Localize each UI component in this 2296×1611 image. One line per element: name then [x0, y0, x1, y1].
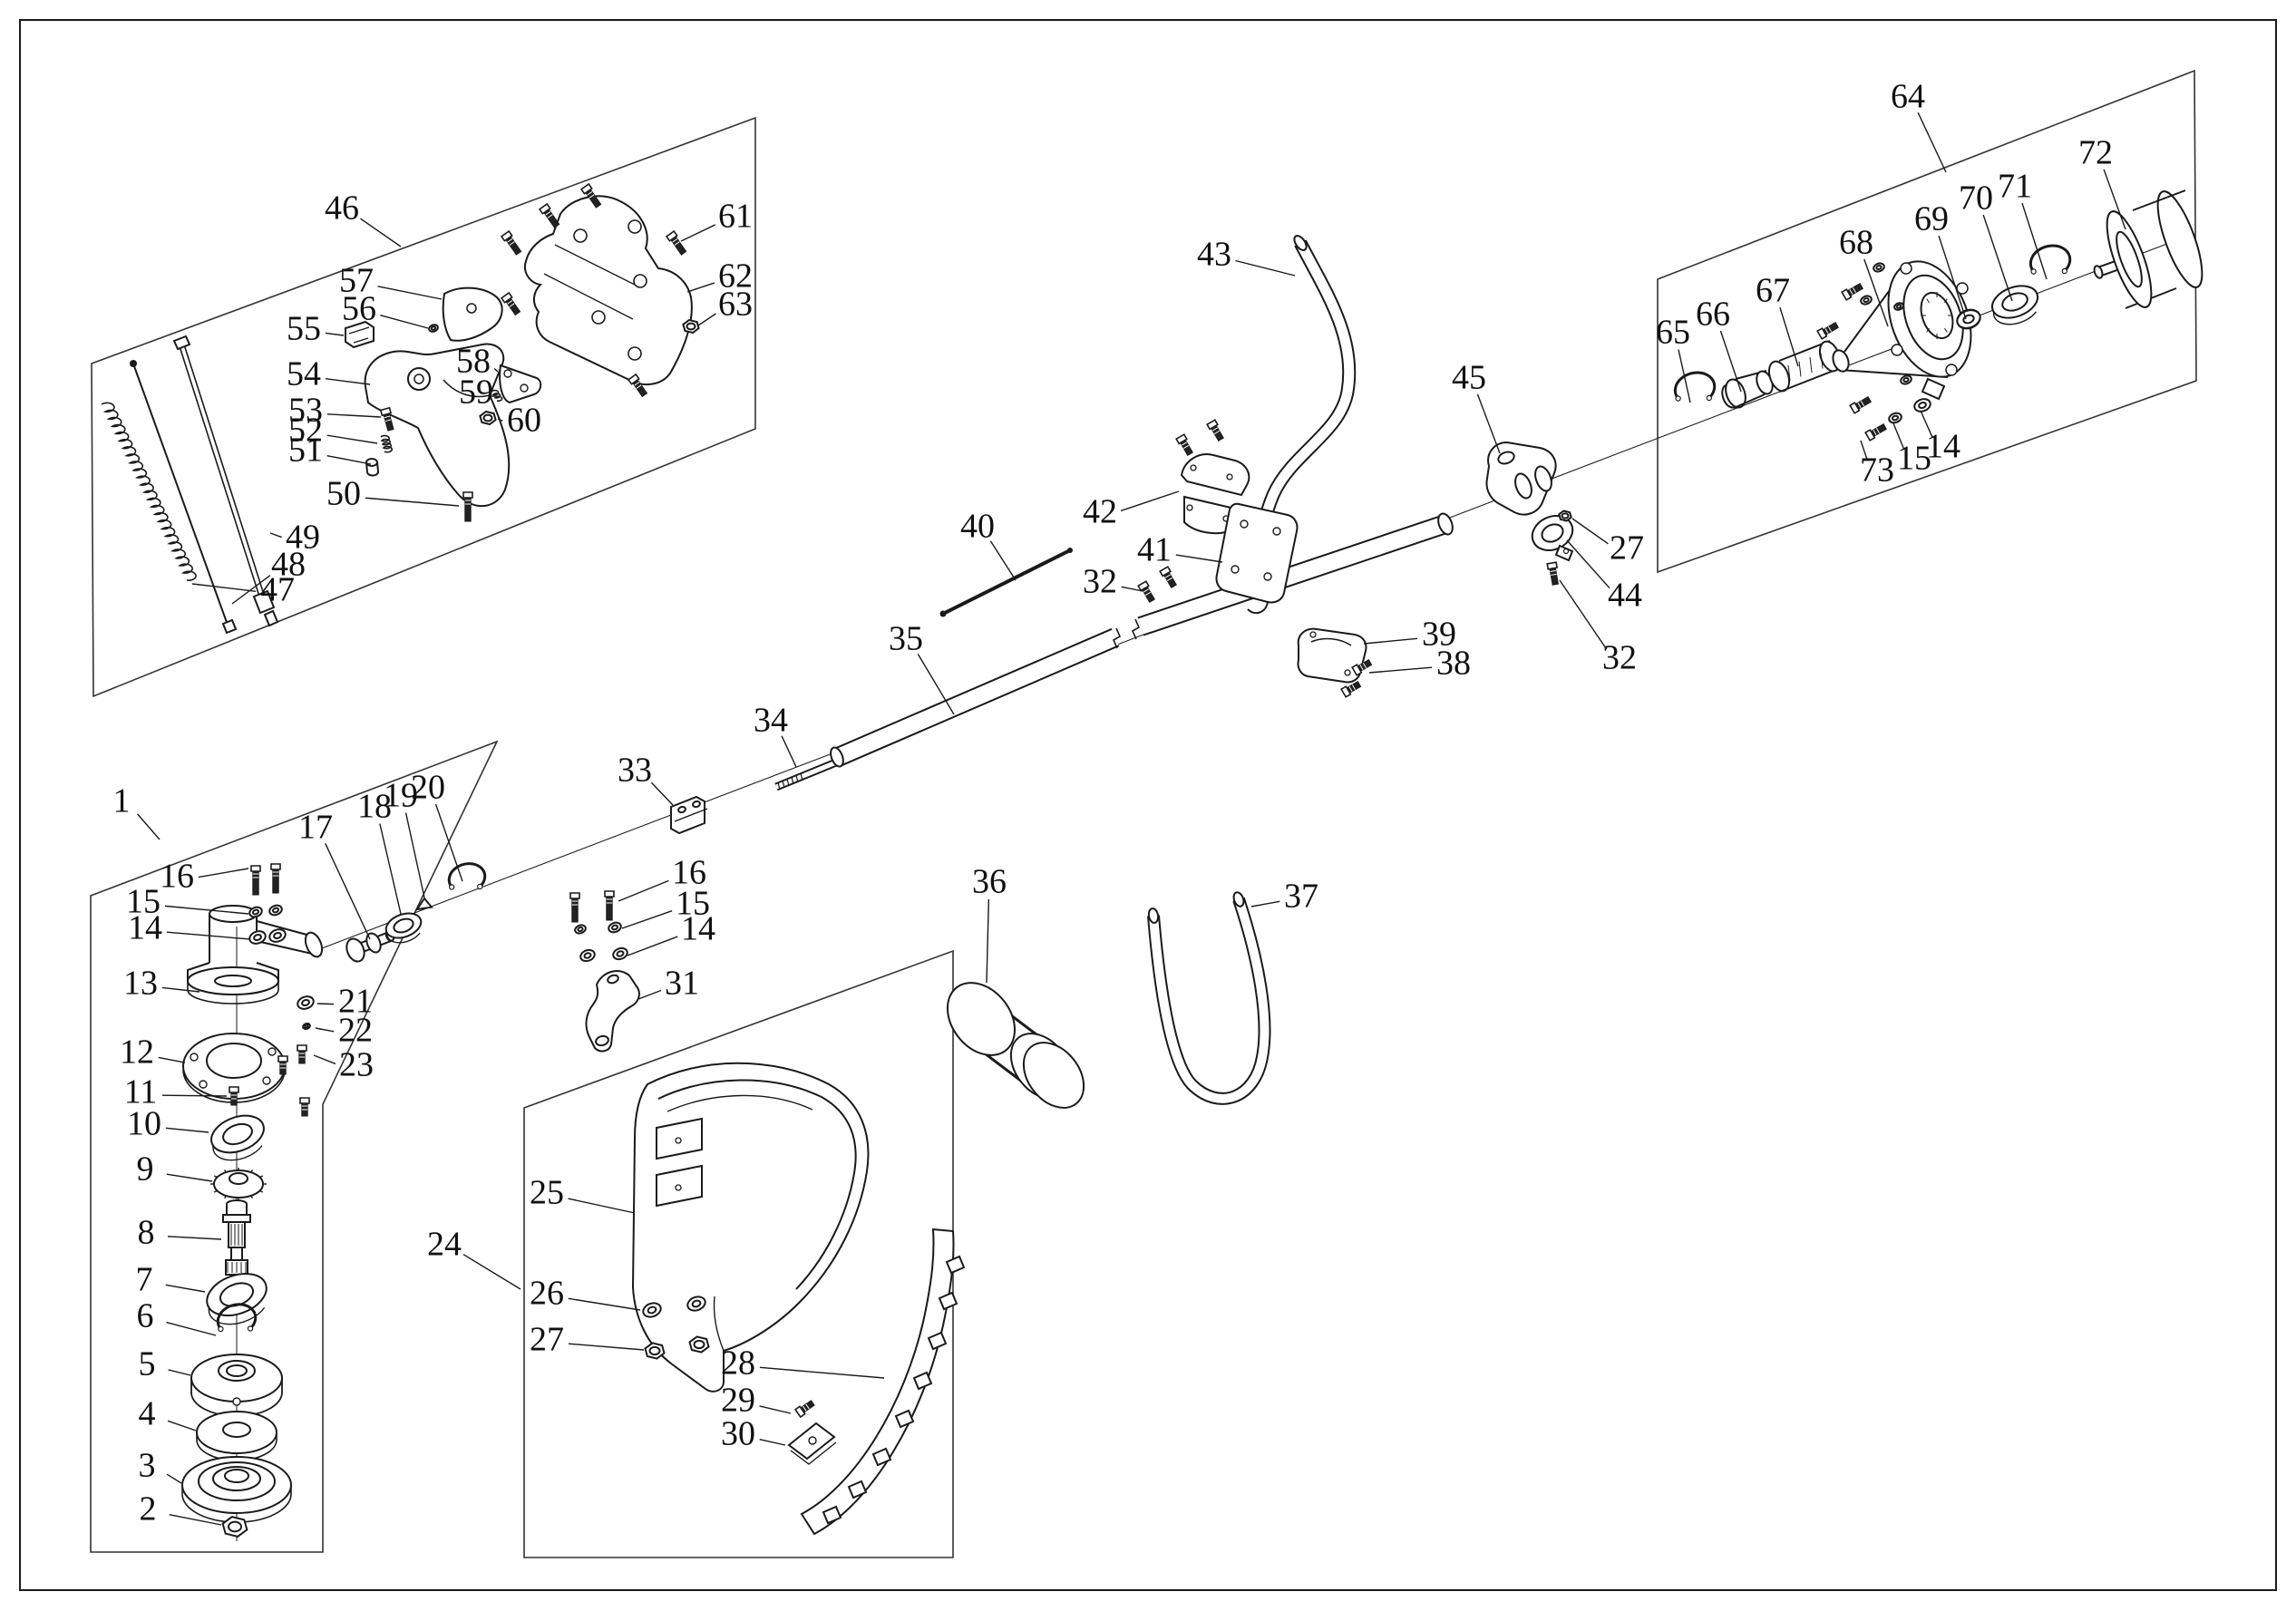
screw: [501, 231, 522, 256]
hex-nut: [1559, 511, 1571, 521]
leader-line-9: [167, 1174, 212, 1181]
circlip-eye: [2031, 269, 2036, 274]
part-label-66: 66: [1696, 296, 1730, 334]
part-label-56: 56: [342, 290, 376, 328]
throttle-handle-parts: [102, 196, 692, 633]
clip-hole: [1310, 632, 1316, 637]
part-label-61: 61: [718, 198, 753, 236]
drive-plate-hub: [219, 1361, 255, 1381]
part-label-65: 65: [1656, 314, 1690, 352]
gear-tooth: [214, 1191, 217, 1193]
washer: [302, 1023, 310, 1030]
bracket-hook: [1248, 602, 1268, 613]
part-label-71: 71: [1998, 168, 2032, 206]
leader-line-4: [168, 1421, 196, 1431]
hex-nut: [690, 1336, 709, 1352]
cable-end-ball: [130, 360, 137, 367]
leader-line-31: [638, 990, 661, 999]
break-mark: [1133, 619, 1139, 639]
leader-line-11: [162, 1095, 227, 1096]
leader-line-14: [628, 937, 677, 956]
bracket-hole: [1240, 520, 1248, 528]
leader-line-55: [326, 333, 344, 335]
washer: [1860, 295, 1873, 306]
part-label-47: 47: [260, 571, 295, 609]
leader-line-37: [1251, 901, 1279, 907]
part-label-72: 72: [2078, 134, 2113, 172]
leader-line-7: [166, 1285, 205, 1292]
leader-line-24: [463, 1255, 520, 1289]
leader-line-16: [618, 880, 668, 901]
circlip-eye: [1707, 395, 1711, 400]
leader-line-49: [270, 533, 282, 538]
circlip-eye: [248, 1326, 252, 1331]
part-label-25: 25: [530, 1174, 564, 1212]
part-label-22: 22: [338, 1012, 373, 1050]
leader-line-6: [166, 1323, 216, 1335]
leader-line-63: [698, 314, 715, 325]
part-label-5: 5: [139, 1345, 156, 1383]
flange-hole: [268, 1048, 276, 1055]
screw: [271, 864, 280, 893]
part-label-70: 70: [1959, 180, 1993, 218]
bracket-hole: [1273, 528, 1280, 535]
leader-line-62: [687, 283, 715, 292]
screw: [300, 1098, 309, 1116]
flange-hole: [199, 1081, 207, 1088]
part-label-13: 13: [123, 965, 158, 1003]
part-label-59: 59: [459, 374, 493, 412]
part-label-42: 42: [1083, 493, 1117, 531]
screw: [251, 866, 260, 895]
screw: [1842, 282, 1863, 300]
part-label-8: 8: [138, 1214, 155, 1252]
coupler-spline: [1799, 362, 1801, 377]
part-label-36: 36: [972, 863, 1007, 901]
part-label-41: 41: [1137, 531, 1172, 569]
leader-line-65: [1678, 349, 1690, 403]
washer: [1900, 374, 1912, 385]
part-label-44: 44: [1608, 577, 1642, 615]
part-label-3: 3: [139, 1447, 156, 1485]
leader-line-12: [159, 1057, 185, 1063]
leader-line-41: [1176, 555, 1222, 562]
washer: [268, 927, 287, 944]
washer: [574, 924, 587, 935]
drive-shaft-core: [776, 762, 836, 787]
washer: [268, 904, 284, 917]
circlip-eye: [1676, 396, 1680, 401]
circlip: [449, 864, 484, 888]
screw: [1176, 434, 1194, 456]
part-label-2: 2: [140, 1490, 157, 1529]
blade-clamp-washer: [197, 1412, 277, 1453]
leader-line-51: [327, 456, 371, 464]
part-label-7: 7: [136, 1261, 153, 1299]
part-label-14: 14: [1926, 428, 1960, 466]
leader-line-10: [166, 1128, 209, 1132]
screw: [605, 891, 614, 920]
leader-line-52: [327, 435, 377, 443]
part-label-38: 38: [1436, 645, 1471, 683]
screw: [570, 893, 579, 922]
circlip-eye: [478, 884, 482, 888]
part-label-73: 73: [1860, 451, 1894, 490]
screw: [795, 1399, 815, 1417]
leader-line-16: [199, 869, 248, 878]
part-label-55: 55: [287, 310, 321, 348]
clamp-hole: [1227, 474, 1232, 480]
part-label-1: 1: [113, 782, 131, 820]
leader-line-50: [365, 498, 459, 506]
hex-nut: [480, 412, 495, 424]
switch-wire-a: [180, 346, 261, 602]
pinion-gear-end: [344, 937, 367, 965]
leader-line-64: [1918, 112, 1946, 172]
screw: [1160, 567, 1178, 588]
part-label-60: 60: [507, 402, 541, 440]
lock-hole: [233, 1398, 240, 1405]
part-label-51: 51: [288, 432, 323, 470]
leader-line-28: [760, 1367, 884, 1378]
leader-line-47: [192, 584, 256, 591]
leader-line-38: [1369, 667, 1432, 673]
clutch-drum-back: [2149, 187, 2211, 292]
leader-line-40: [990, 541, 1016, 580]
lever-hole: [520, 384, 528, 392]
trigger-hole: [467, 304, 476, 313]
throttle-cable: [134, 366, 229, 627]
part-label-32: 32: [1083, 563, 1117, 601]
screw-boss: [628, 347, 641, 360]
flange-ear: [1957, 283, 1968, 294]
washer: [608, 921, 623, 934]
leader-line-53: [327, 414, 381, 417]
leader-line-17: [326, 843, 370, 939]
part-label-54: 54: [287, 355, 321, 393]
screw: [229, 1087, 238, 1105]
part-label-17: 17: [298, 809, 333, 847]
cable-end-fitting: [223, 620, 236, 633]
lever-hole: [504, 370, 511, 377]
rod-end: [940, 611, 947, 617]
circlip-eye: [450, 885, 454, 889]
spring-coil-0: [102, 403, 196, 580]
leader-line-70: [1983, 215, 2012, 301]
gear-tooth: [259, 1176, 262, 1178]
leader-line-23: [314, 1055, 336, 1063]
part-label-50: 50: [326, 475, 361, 513]
gear-tooth: [214, 1176, 217, 1178]
leader-line-5: [169, 1370, 190, 1375]
hex-nut: [223, 1517, 248, 1537]
part-label-40: 40: [960, 508, 995, 546]
washer: [1873, 262, 1885, 273]
flange-hole: [190, 1053, 198, 1061]
hex-nut: [646, 1343, 665, 1358]
handlebar-end: [1292, 234, 1309, 252]
part-label-43: 43: [1197, 236, 1231, 274]
clutch-drum-mouth: [2098, 207, 2160, 312]
leader-line-54: [326, 379, 370, 384]
coupler-spline: [1810, 357, 1812, 373]
flange-hole: [263, 1077, 270, 1084]
leader-line-42: [1121, 491, 1179, 510]
leader-line-25: [569, 1199, 635, 1213]
clamp-hole: [1187, 505, 1192, 510]
bracket-hole: [1264, 573, 1271, 580]
flange-center-hole: [207, 1043, 261, 1078]
part-label-45: 45: [1452, 359, 1486, 397]
leader-line-34: [782, 736, 796, 767]
wire-terminal: [265, 611, 277, 626]
part-label-67: 67: [1756, 272, 1790, 310]
part-label-33: 33: [618, 752, 652, 790]
bell-foot: [1922, 379, 1944, 399]
leader-line-33: [651, 782, 673, 805]
leader-line-27: [1572, 519, 1608, 544]
leader-line-19: [406, 813, 424, 898]
screw: [297, 1045, 306, 1063]
clip-hole: [1345, 670, 1350, 675]
part-label-14: 14: [681, 910, 715, 948]
flange-ear: [1946, 364, 1957, 375]
loop-handle-core: [1153, 899, 1264, 1099]
leader-line-20: [436, 804, 462, 881]
screw: [1547, 562, 1560, 585]
part-label-30: 30: [721, 1415, 755, 1453]
part-label-10: 10: [127, 1105, 161, 1143]
clamp-hole: [1191, 465, 1196, 471]
screw-boss: [592, 311, 605, 324]
part-label-20: 20: [411, 769, 445, 807]
gear-housing-flange: [188, 967, 278, 995]
leader-line-32: [1560, 580, 1607, 649]
hex-nut: [683, 320, 698, 333]
screw: [278, 1056, 287, 1074]
leader-line-15: [622, 911, 672, 928]
part-label-63: 63: [718, 286, 753, 324]
leader-line-56: [380, 315, 428, 328]
washer: [1912, 397, 1931, 413]
screw: [501, 293, 521, 315]
part-label-35: 35: [889, 620, 923, 658]
leader-line-18: [380, 824, 401, 914]
handlebar: [1262, 243, 1349, 555]
rod-end: [1067, 548, 1073, 553]
circlip: [1675, 373, 1714, 399]
leader-line-1: [138, 814, 160, 839]
part-label-69: 69: [1914, 200, 1949, 238]
part-label-26: 26: [530, 1275, 564, 1313]
part-label-9: 9: [137, 1150, 154, 1189]
leader-line-61: [681, 225, 715, 241]
exploded-parts-diagram: 4661626357565554535251505859604948471161…: [0, 0, 2296, 1611]
part-label-46: 46: [325, 189, 359, 228]
screw: [1850, 395, 1872, 413]
throttle-trigger: [443, 288, 502, 341]
screw: [463, 492, 472, 521]
switch-wire-b: [184, 345, 266, 600]
leader-line-39: [1364, 638, 1417, 644]
part-labels: 4661626357565554535251505859604948471161…: [113, 78, 2126, 1529]
washer: [612, 946, 629, 961]
guard-parts: [587, 971, 964, 1534]
leader-line-36: [987, 899, 988, 983]
part-label-68: 68: [1839, 224, 1873, 262]
bracket-hole: [1231, 566, 1239, 573]
gear-tooth: [259, 1191, 262, 1193]
leader-line-43: [1235, 261, 1295, 276]
screw-boss: [628, 220, 641, 233]
part-label-64: 64: [1891, 78, 1925, 116]
part-label-14: 14: [128, 909, 162, 947]
flange-ear: [1892, 345, 1902, 355]
screw: [666, 231, 687, 256]
screw: [1817, 321, 1839, 339]
leader-line-14: [167, 932, 250, 939]
gear-hub: [229, 1173, 248, 1184]
leader-line-26: [569, 1298, 640, 1310]
leader-line-29: [760, 1406, 791, 1413]
part-label-34: 34: [754, 702, 788, 740]
circlip-eye: [219, 1326, 223, 1331]
leader-line-46: [361, 218, 401, 247]
spring-coil-1: [381, 436, 392, 452]
part-label-27: 27: [530, 1321, 564, 1359]
leader-line-27: [569, 1344, 644, 1350]
handlebar-mount-bracket: [1216, 504, 1297, 603]
part-label-4: 4: [139, 1395, 156, 1433]
part-label-16: 16: [160, 858, 194, 896]
leader-line-21: [317, 1004, 334, 1004]
screw-boss: [574, 229, 587, 242]
diagram-page: 4661626357565554535251505859604948471161…: [0, 0, 2296, 1611]
washer: [1888, 412, 1903, 424]
leader-line-45: [1477, 394, 1500, 453]
screw: [1207, 420, 1225, 442]
wire-top-fitting: [174, 336, 190, 349]
safety-guard: [633, 1063, 868, 1392]
pivot-pin: [366, 459, 377, 466]
line-cutter-blade: [789, 1423, 834, 1459]
part-label-31: 31: [665, 965, 699, 1003]
leader-line-44: [1567, 540, 1610, 588]
leader-line-22: [316, 1028, 334, 1032]
part-label-12: 12: [120, 1034, 154, 1072]
part-label-23: 23: [339, 1046, 374, 1084]
screw: [540, 204, 560, 228]
screw-boss: [634, 275, 647, 287]
cup-hub: [225, 1470, 248, 1482]
circlip-eye: [2062, 268, 2067, 273]
bar-clamp-upper: [1182, 454, 1249, 495]
handle-housing-rear: [525, 196, 692, 384]
leader-line-30: [760, 1440, 785, 1445]
leader-line-71: [2022, 203, 2047, 279]
main-drive-tube-core: [836, 637, 1115, 758]
leader-line-57: [378, 286, 442, 299]
flange-ear: [1901, 263, 1912, 274]
part-label-6: 6: [137, 1297, 154, 1335]
part-label-24: 24: [427, 1226, 462, 1264]
part-label-37: 37: [1284, 878, 1318, 916]
part-label-32: 32: [1602, 639, 1637, 677]
washer: [579, 948, 597, 963]
screw: [1865, 422, 1887, 441]
clutch-housing-parts: [1719, 187, 2211, 411]
part-label-29: 29: [721, 1382, 755, 1420]
washer: [296, 995, 315, 1011]
part-label-28: 28: [721, 1344, 755, 1383]
throttle-rod: [943, 550, 1070, 614]
handle-boss: [408, 368, 430, 390]
screw: [1138, 581, 1156, 603]
leader-line-3: [167, 1474, 181, 1483]
washer: [428, 324, 439, 333]
part-label-27: 27: [1610, 529, 1644, 568]
leader-line-8: [168, 1237, 221, 1239]
